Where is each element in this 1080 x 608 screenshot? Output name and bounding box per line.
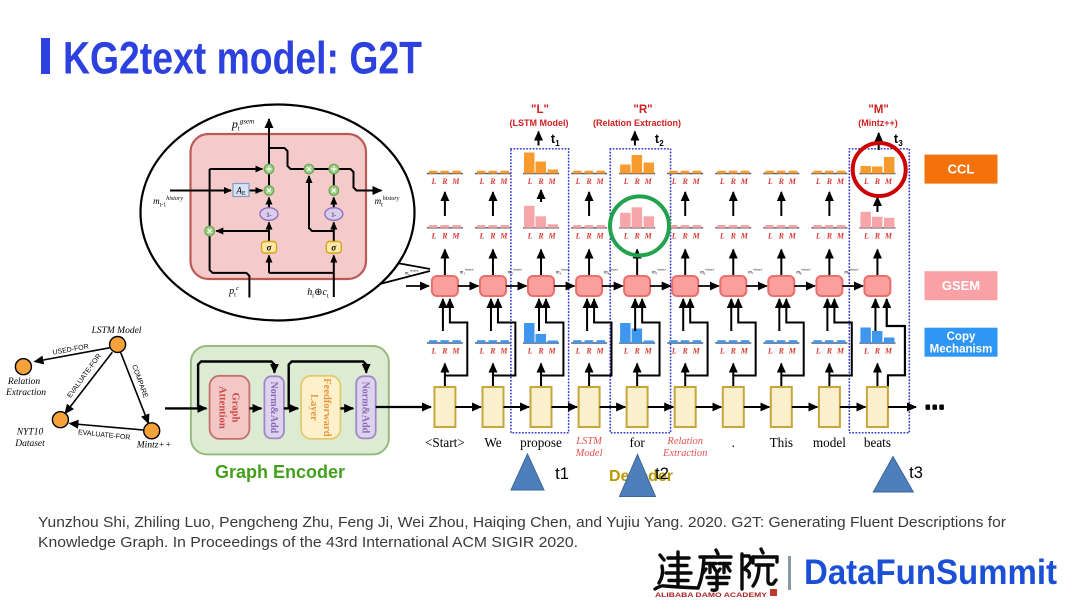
- svg-text:L: L: [719, 231, 725, 240]
- svg-text:L: L: [863, 231, 869, 240]
- svg-text:R: R: [682, 347, 689, 356]
- svg-text:Norm&Add: Norm&Add: [268, 382, 279, 434]
- svg-text:This: This: [770, 435, 793, 450]
- svg-text:R: R: [441, 347, 448, 356]
- svg-text:R: R: [682, 177, 689, 186]
- svg-text:R: R: [633, 347, 640, 356]
- svg-text:M: M: [884, 347, 893, 356]
- svg-text:R: R: [826, 231, 833, 240]
- svg-text:L: L: [863, 347, 869, 356]
- svg-text:for: for: [629, 435, 645, 450]
- svg-text:M: M: [692, 231, 701, 240]
- svg-text:"L": "L": [531, 104, 549, 116]
- svg-text:M: M: [644, 177, 653, 186]
- svg-text:L: L: [479, 231, 485, 240]
- svg-text:Mintz++: Mintz++: [136, 441, 171, 451]
- svg-text:(Relation Extraction): (Relation Extraction): [593, 118, 681, 128]
- svg-text:Norm&Add: Norm&Add: [360, 382, 371, 434]
- svg-text:Extraction: Extraction: [5, 388, 46, 398]
- svg-text:L: L: [815, 177, 821, 186]
- svg-text:M: M: [836, 347, 845, 356]
- svg-text:L: L: [671, 177, 677, 186]
- svg-text:L: L: [767, 177, 773, 186]
- svg-text:M: M: [547, 177, 556, 186]
- svg-text:M: M: [692, 347, 701, 356]
- svg-text:R: R: [633, 177, 640, 186]
- svg-text:ht⊕ct: ht⊕ct: [307, 287, 329, 300]
- svg-text:M: M: [740, 177, 749, 186]
- svg-text:L: L: [623, 177, 629, 186]
- svg-text:R: R: [778, 231, 785, 240]
- svg-text:propose: propose: [520, 435, 562, 450]
- svg-text:t3: t3: [909, 464, 923, 482]
- svg-text:"R": "R": [633, 104, 652, 116]
- svg-text:LSTM Model: LSTM Model: [91, 326, 142, 336]
- svg-text:M: M: [547, 231, 556, 240]
- svg-text:R: R: [537, 231, 544, 240]
- svg-text:Dataset: Dataset: [14, 439, 45, 449]
- svg-text:M: M: [451, 231, 460, 240]
- svg-text:NYT10: NYT10: [16, 428, 44, 438]
- svg-text:M: M: [788, 231, 797, 240]
- svg-text:R: R: [826, 177, 833, 186]
- svg-text:M: M: [836, 231, 845, 240]
- svg-text:t1: t1: [555, 465, 569, 483]
- svg-text:R: R: [441, 177, 448, 186]
- svg-text:DataFunSummit: DataFunSummit: [804, 553, 1057, 592]
- svg-text:M: M: [499, 177, 508, 186]
- svg-text:L: L: [430, 231, 436, 240]
- svg-text:R: R: [730, 347, 737, 356]
- svg-text:R: R: [489, 177, 496, 186]
- svg-text:M: M: [884, 177, 893, 186]
- svg-text:2: 2: [659, 139, 664, 148]
- svg-text:R: R: [874, 231, 881, 240]
- svg-text:M: M: [596, 231, 605, 240]
- svg-text:R: R: [730, 231, 737, 240]
- svg-text:1: 1: [555, 139, 560, 148]
- svg-text:R: R: [537, 177, 544, 186]
- svg-text:1-: 1-: [331, 213, 336, 219]
- svg-text:M: M: [644, 231, 653, 240]
- svg-text:M: M: [740, 347, 749, 356]
- svg-text:Feedforward: Feedforward: [321, 378, 332, 436]
- svg-text:L: L: [527, 177, 533, 186]
- svg-text:L: L: [479, 347, 485, 356]
- svg-text:R: R: [826, 347, 833, 356]
- svg-text:R: R: [489, 231, 496, 240]
- svg-text:L: L: [863, 177, 869, 186]
- svg-text:R: R: [778, 347, 785, 356]
- svg-text:Knowledge Graph. In Proceeding: Knowledge Graph. In Proceedings of the 4…: [38, 534, 578, 551]
- svg-text:R: R: [489, 347, 496, 356]
- svg-text:CCL: CCL: [948, 162, 975, 177]
- svg-text:L: L: [430, 177, 436, 186]
- svg-text:GSEM: GSEM: [942, 278, 980, 293]
- svg-text:L: L: [671, 231, 677, 240]
- svg-text:M: M: [788, 347, 797, 356]
- svg-text:L: L: [719, 347, 725, 356]
- svg-text:R: R: [585, 177, 592, 186]
- svg-text:"M": "M": [868, 104, 888, 116]
- svg-text:L: L: [527, 347, 533, 356]
- svg-text:M: M: [692, 177, 701, 186]
- svg-text:M: M: [644, 347, 653, 356]
- svg-text:M: M: [836, 177, 845, 186]
- svg-text:L: L: [767, 347, 773, 356]
- svg-text:.: .: [732, 435, 735, 450]
- svg-text:1-: 1-: [267, 213, 272, 219]
- svg-text:R: R: [874, 347, 881, 356]
- svg-text:Yunzhou Shi, Zhiling Luo, Peng: Yunzhou Shi, Zhiling Luo, Pengcheng Zhu,…: [38, 514, 1006, 531]
- svg-text:(Mintz++): (Mintz++): [858, 118, 898, 128]
- svg-text:M: M: [788, 177, 797, 186]
- svg-text:L: L: [575, 347, 581, 356]
- svg-text:L: L: [623, 231, 629, 240]
- svg-text:L: L: [815, 231, 821, 240]
- svg-text:3: 3: [898, 139, 903, 148]
- svg-text:Graph: Graph: [230, 393, 241, 423]
- svg-text:M: M: [547, 347, 556, 356]
- svg-text:Extraction: Extraction: [662, 448, 707, 459]
- svg-text:R: R: [585, 231, 592, 240]
- svg-text:We: We: [484, 435, 501, 450]
- svg-text:M: M: [499, 347, 508, 356]
- svg-text:Relation: Relation: [7, 377, 40, 387]
- svg-text:L: L: [671, 347, 677, 356]
- svg-text:(LSTM Model): (LSTM Model): [510, 118, 569, 128]
- svg-text:KG2text model: G2T: KG2text model: G2T: [63, 33, 422, 84]
- svg-text:M: M: [451, 347, 460, 356]
- svg-text:ALIBABA DAMO ACADEMY: ALIBABA DAMO ACADEMY: [655, 592, 768, 599]
- svg-text:M: M: [740, 231, 749, 240]
- svg-text:Graph Encoder: Graph Encoder: [215, 462, 345, 482]
- svg-text:<Start>: <Start>: [425, 435, 465, 450]
- svg-text:L: L: [575, 231, 581, 240]
- svg-text:LSTM: LSTM: [575, 436, 603, 447]
- svg-text:M: M: [596, 347, 605, 356]
- svg-text:L: L: [479, 177, 485, 186]
- svg-text:M: M: [596, 177, 605, 186]
- svg-text:Copy: Copy: [947, 331, 976, 343]
- svg-text:Model: Model: [575, 448, 603, 459]
- svg-text:M: M: [884, 231, 893, 240]
- svg-text:M: M: [451, 177, 460, 186]
- svg-text:R: R: [441, 231, 448, 240]
- svg-text:R: R: [633, 231, 640, 240]
- svg-text:model: model: [813, 435, 846, 450]
- svg-text:R: R: [778, 177, 785, 186]
- svg-text:R: R: [682, 231, 689, 240]
- svg-text:L: L: [767, 231, 773, 240]
- svg-text:L: L: [815, 347, 821, 356]
- svg-text:beats: beats: [864, 435, 891, 450]
- svg-text:Attention: Attention: [217, 386, 228, 429]
- svg-text:R: R: [874, 177, 881, 186]
- svg-text:L: L: [623, 347, 629, 356]
- svg-text:L: L: [719, 177, 725, 186]
- svg-text:R: R: [730, 177, 737, 186]
- svg-text:t2: t2: [655, 465, 669, 483]
- svg-text:R: R: [537, 347, 544, 356]
- svg-text:Relation: Relation: [666, 436, 703, 447]
- svg-text:L: L: [527, 231, 533, 240]
- svg-text:Layer: Layer: [308, 394, 319, 421]
- svg-text:M: M: [499, 231, 508, 240]
- svg-text:Mechanism: Mechanism: [930, 344, 993, 356]
- svg-text:L: L: [430, 347, 436, 356]
- svg-text:R: R: [585, 347, 592, 356]
- svg-text:L: L: [575, 177, 581, 186]
